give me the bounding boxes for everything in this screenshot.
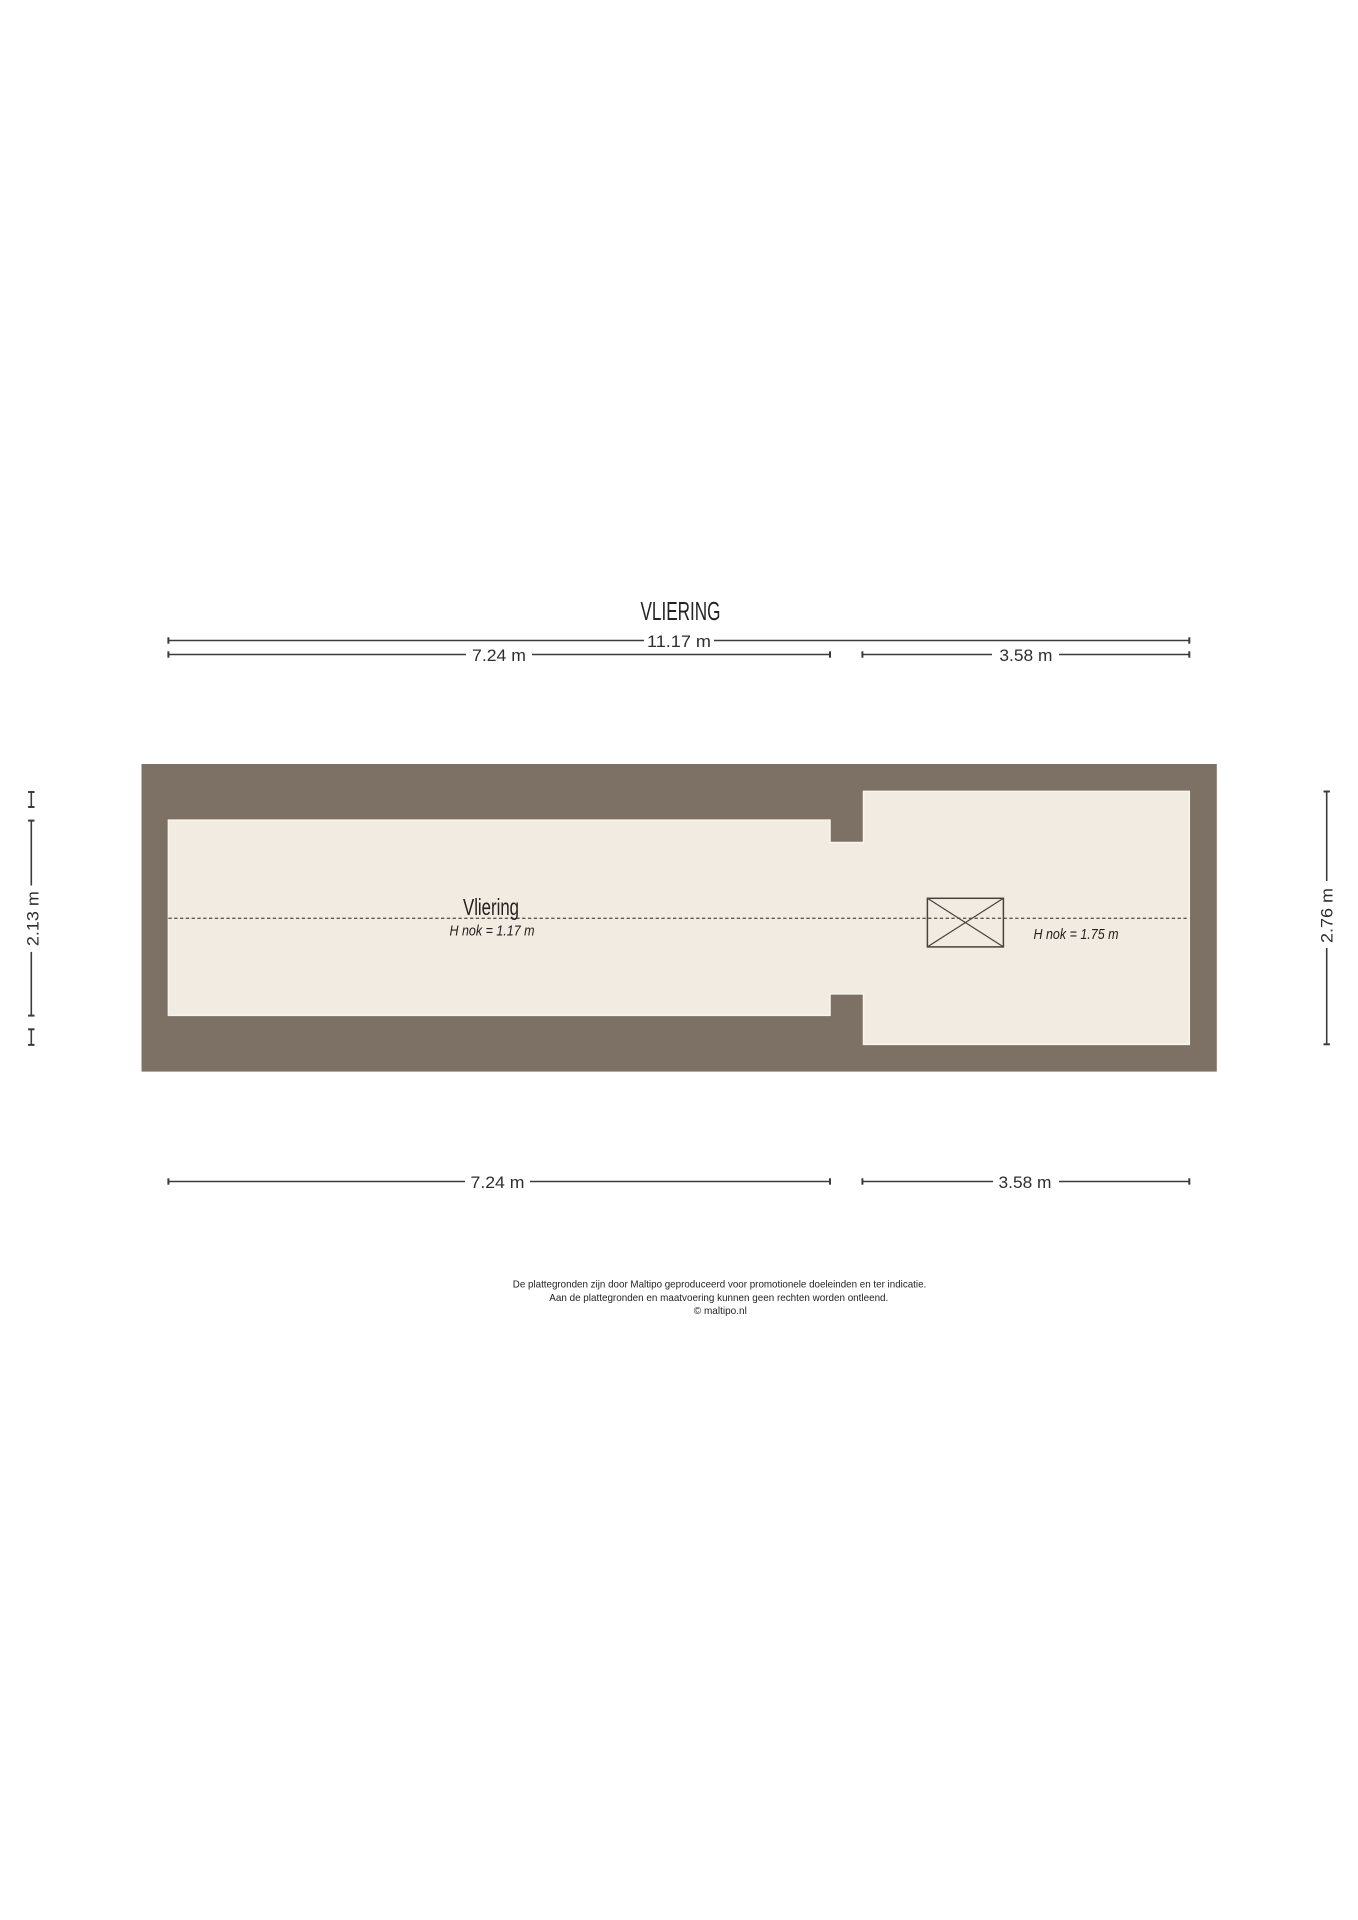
svg-text:7.24 m: 7.24 m (471, 1173, 525, 1192)
svg-text:Aan de plattegronden en maatvo: Aan de plattegronden en maatvoering kunn… (549, 1292, 888, 1304)
svg-text:3.58 m: 3.58 m (999, 1173, 1052, 1192)
svg-text:H nok = 1.75 m: H nok = 1.75 m (1034, 926, 1119, 943)
svg-text:7.24 m: 7.24 m (472, 646, 526, 665)
svg-text:De plattegronden zijn door Mal: De plattegronden zijn door Maltipo gepro… (513, 1278, 927, 1290)
svg-text:VLIERING: VLIERING (641, 598, 721, 626)
svg-text:3.58 m: 3.58 m (999, 646, 1052, 665)
svg-text:© maltipo.nl: © maltipo.nl (694, 1305, 747, 1317)
svg-text:2.13 m: 2.13 m (24, 891, 43, 946)
svg-text:2.76 m: 2.76 m (1318, 888, 1337, 943)
svg-text:11.17 m: 11.17 m (647, 632, 711, 651)
svg-text:Vliering: Vliering (463, 894, 519, 920)
svg-text:H nok = 1.17 m: H nok = 1.17 m (450, 923, 535, 940)
